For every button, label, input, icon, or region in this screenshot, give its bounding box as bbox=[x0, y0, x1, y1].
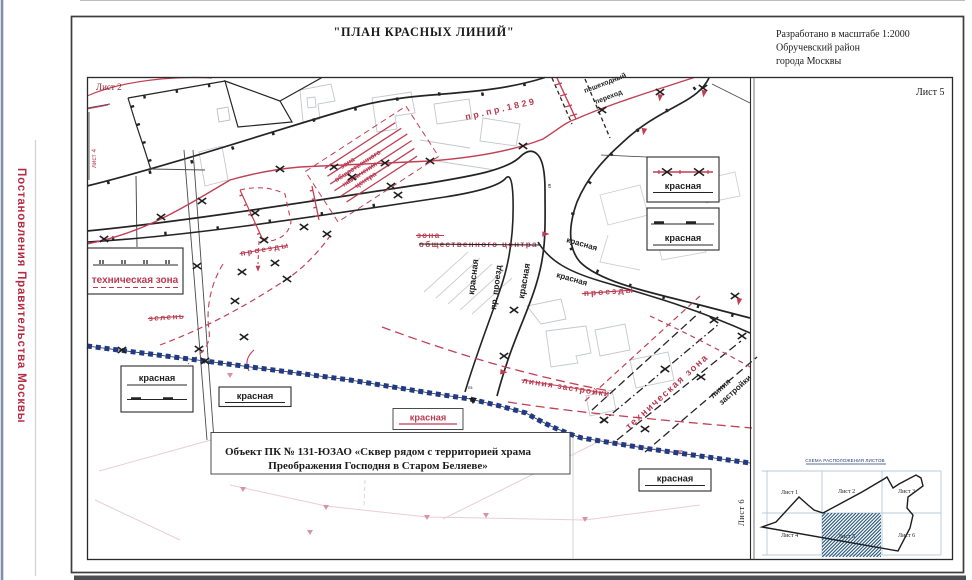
svg-text:красная: красная bbox=[139, 373, 175, 383]
svg-text:красная: красная bbox=[665, 233, 701, 243]
svg-text:Обручевский район: Обручевский район bbox=[776, 43, 861, 54]
svg-text:Лист 2: Лист 2 bbox=[96, 82, 122, 92]
svg-text:красная: красная bbox=[657, 474, 693, 484]
svg-text:Разработано в масштабе 1:2000: Разработано в масштабе 1:2000 bbox=[776, 29, 910, 40]
svg-text:красная: красная bbox=[237, 391, 273, 401]
svg-text:города Москвы: города Москвы bbox=[776, 56, 842, 67]
svg-text:Лист 5: Лист 5 bbox=[838, 534, 855, 540]
svg-text:Лист 6: Лист 6 bbox=[898, 533, 915, 539]
svg-text:Лист 1: Лист 1 bbox=[781, 490, 798, 496]
svg-text:пз: пз bbox=[468, 385, 473, 390]
svg-text:СХЕМА РАСПОЛОЖЕНИЯ ЛИСТОВ: СХЕМА РАСПОЛОЖЕНИЯ ЛИСТОВ bbox=[805, 458, 884, 463]
svg-text:вз: вз bbox=[547, 183, 553, 188]
svg-text:"ПЛАН КРАСНЫХ ЛИНИЙ": "ПЛАН КРАСНЫХ ЛИНИЙ" bbox=[334, 25, 515, 39]
svg-text:Лист 3: Лист 3 bbox=[898, 489, 915, 495]
svg-text:Лист 2: Лист 2 bbox=[838, 489, 855, 495]
svg-text:Объект ПК № 131-ЮЗАО «Сквер ря: Объект ПК № 131-ЮЗАО «Сквер рядом с терр… bbox=[225, 446, 532, 458]
svg-text:Преображения Господня в Старом: Преображения Господня в Старом Беляеве» bbox=[268, 460, 487, 472]
svg-text:лист 4: лист 4 bbox=[91, 149, 98, 168]
svg-text:техническая зона: техническая зона bbox=[92, 275, 179, 286]
svg-text:Лист 6: Лист 6 bbox=[736, 499, 746, 526]
svg-text:Лист 5: Лист 5 bbox=[916, 87, 944, 98]
svg-text:Постановления Правительства Мо: Постановления Правительства Москвы bbox=[15, 168, 27, 423]
svg-text:Лист 4: Лист 4 bbox=[781, 533, 798, 539]
svg-text:красная: красная bbox=[410, 413, 446, 423]
svg-text:красная: красная bbox=[665, 181, 701, 191]
